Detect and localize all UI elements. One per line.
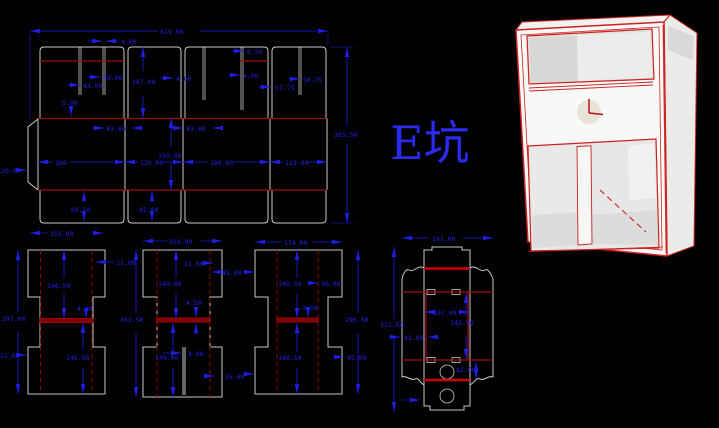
dim-spread-panel4-width: 119.00: [285, 159, 309, 167]
spread-dimensions: 619.00 4.00 43.00 43.00 147.00 4.00 5.00…: [1, 28, 358, 223]
dim-strip-inner-height: 145.50: [450, 319, 474, 327]
dim-strip-hole-section: 82.00: [456, 366, 476, 374]
left-cell-floor: [532, 212, 578, 248]
dim-piece2-top-flap: 45.00: [222, 269, 242, 277]
dim-spread-top-4: 4.00: [176, 75, 192, 83]
finger-hole-circle: [440, 365, 454, 379]
dim-piece2-bottom-flap: 35.00: [225, 373, 245, 381]
dim-piece1-crease: 4.00: [77, 305, 93, 313]
strip-drawing: 191.00 321.50 107.00 145.50 42.00 82.00: [380, 235, 493, 412]
dim-strip-width: 191.00: [432, 235, 456, 243]
dim-spread-panel-43-left: 43.00: [106, 125, 126, 133]
strip-cut-lines: [402, 247, 493, 410]
piece1-dimensions: 155.00 297.00 21.00 146.50 4.00 146.50 2…: [0, 230, 136, 394]
dim-piece3-bottom-flap: 45.00: [347, 354, 367, 362]
dim-spread-right-5675: 56.75: [303, 76, 323, 84]
strip-dimensions: 191.00 321.50 107.00 145.50 42.00 82.00: [380, 235, 493, 412]
dim-strip-side-flap: 42.00: [404, 334, 424, 342]
dim-spread-total-height: 365.50: [334, 131, 358, 139]
window-interior-light: [577, 32, 652, 82]
dim-spread-panel2-width: 120.00: [140, 159, 164, 167]
dim-strip-inner-width: 107.00: [433, 309, 457, 317]
finger-hole-circle: [440, 389, 454, 403]
dim-spread-right-5775: 57.75: [275, 84, 295, 92]
dim-piece1-lower: 146.50: [66, 354, 90, 362]
dim-piece1-upper: 146.50: [47, 282, 71, 290]
dim-piece2-width: 156.00: [169, 238, 193, 246]
dim-strip-height: 321.50: [380, 321, 404, 329]
dim-piece3-width: 174.00: [284, 239, 308, 247]
dim-piece1-bottom-notch: 21.00: [0, 352, 20, 360]
right-cell-floor: [592, 210, 658, 245]
dim-piece2-lower: 149.00: [155, 354, 179, 362]
piece2-dimensions: 156.00 301.50 21.00 45.00 149.00 4.50 14…: [120, 238, 245, 397]
spread-drawing: 619.00 4.00 43.00 43.00 147.00 4.00 5.00…: [1, 28, 358, 223]
crease-band: [157, 318, 210, 322]
dim-spread-top-43a: 43.00: [103, 74, 123, 82]
dim-piece2-height: 301.50: [120, 316, 144, 324]
dim-piece1-top-notch: 21.00: [116, 259, 136, 267]
dim-spread-top-43b: 43.00: [83, 82, 103, 90]
right-cell-back-wall: [628, 143, 656, 200]
dim-piece1-width: 155.00: [50, 230, 74, 238]
crease-band: [40, 319, 93, 323]
dim-piece1-height: 297.00: [2, 315, 26, 323]
crease-band: [277, 318, 318, 322]
spread-cut-lines: [28, 47, 327, 223]
dim-piece3-crease: 3.50: [302, 304, 318, 312]
drawing-svg: 619.00 4.00 43.00 43.00 147.00 4.00 5.00…: [0, 0, 719, 428]
dim-piece2-top-notch: 21.00: [184, 260, 204, 268]
dim-piece3-height: 296.50: [345, 316, 369, 324]
flute-type-label: E坑: [390, 116, 470, 170]
window-interior-dark: [529, 36, 578, 84]
strip-crease-lines: [402, 269, 493, 381]
glue-tab: [28, 119, 38, 190]
box-3d-render: [516, 15, 697, 256]
dim-piece2-crease: 4.50: [186, 299, 202, 307]
dim-spread-slot-width: 4.00: [121, 38, 137, 46]
dim-spread-right-050: 0.50: [247, 48, 263, 56]
dim-spread-panel3-width: 180.00: [210, 159, 234, 167]
end-piece-1: 155.00 297.00 21.00 146.50 4.00 146.50 2…: [0, 230, 136, 394]
dim-spread-panel-43-right: 43.00: [186, 125, 206, 133]
dim-piece3-upper: 146.50: [278, 280, 302, 288]
dim-spread-bottom-flap-b: 82.00: [139, 206, 159, 214]
dim-piece2-upper: 149.00: [158, 280, 182, 288]
end-piece-2: 156.00 301.50 21.00 45.00 149.00 4.50 14…: [120, 238, 245, 397]
end-piece-3: 174.00 146.50 50.00 3.50 296.50 146.50 4…: [246, 239, 369, 394]
dim-piece3-lower: 146.50: [278, 354, 302, 362]
cad-canvas: 619.00 4.00 43.00 43.00 147.00 4.00 5.00…: [0, 0, 719, 428]
dim-spread-panel1-width: 180: [55, 159, 67, 167]
dim-spread-bottom-flap-a: 60.50: [71, 206, 91, 214]
center-divider: [577, 146, 592, 245]
dim-spread-glue-tab: 20.00: [1, 167, 21, 175]
dim-spread-flap-height: 147.00: [132, 78, 156, 86]
dim-piece2-slit: 4.00: [188, 350, 204, 358]
dim-spread-step-5: 5.00: [62, 99, 78, 107]
dim-piece3-top-flap: 50.00: [321, 280, 341, 288]
dim-spread-total-width: 619.00: [160, 28, 184, 36]
dim-spread-right-4: 4.00: [243, 72, 259, 80]
piece3-dimensions: 174.00 146.50 50.00 3.50 296.50 146.50 4…: [246, 239, 369, 394]
